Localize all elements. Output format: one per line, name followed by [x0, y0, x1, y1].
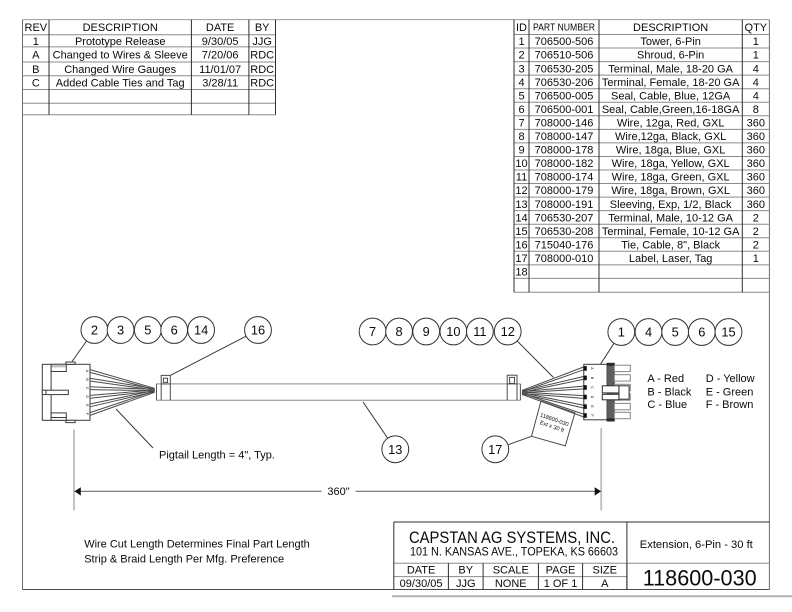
svg-text:10: 10 [446, 324, 460, 339]
svg-text:15: 15 [721, 325, 735, 340]
svg-text:706530-207: 706530-207 [535, 212, 594, 224]
svg-text:SIZE: SIZE [593, 565, 617, 577]
svg-text:708000-010: 708000-010 [535, 253, 594, 265]
svg-text:706530-206: 706530-206 [535, 77, 594, 89]
svg-text:360: 360 [747, 172, 765, 184]
svg-text:9: 9 [518, 145, 524, 157]
svg-text:Sleeving, Exp, 1/2, Black: Sleeving, Exp, 1/2, Black [610, 199, 732, 211]
svg-text:3: 3 [518, 63, 524, 75]
svg-text:Terminal, Female, 18-20 GA: Terminal, Female, 18-20 GA [602, 77, 740, 89]
svg-text:Extension, 6-Pin - 30 ft: Extension, 6-Pin - 30 ft [640, 539, 754, 551]
svg-text:14: 14 [194, 323, 208, 338]
svg-text:11: 11 [516, 172, 527, 184]
svg-text:360: 360 [747, 185, 765, 197]
svg-text:8: 8 [518, 131, 524, 143]
svg-text:C - Blue: C - Blue [647, 399, 687, 411]
svg-text:7: 7 [369, 324, 376, 339]
svg-text:B - Black: B - Black [647, 387, 692, 399]
svg-text:708000-146: 708000-146 [535, 117, 594, 129]
svg-text:RDC: RDC [250, 64, 274, 76]
svg-text:118600-030: 118600-030 [643, 565, 757, 590]
svg-text:17: 17 [488, 442, 502, 457]
svg-text:706530-208: 706530-208 [535, 226, 594, 238]
svg-text:JJG: JJG [456, 578, 476, 590]
svg-text:708000-191: 708000-191 [535, 199, 594, 211]
svg-text:Wire, 12ga, Red, GXL: Wire, 12ga, Red, GXL [617, 117, 725, 129]
svg-text:12: 12 [515, 185, 527, 197]
svg-text:360: 360 [747, 145, 765, 157]
svg-text:1: 1 [753, 50, 759, 62]
svg-text:CAPSTAN AG SYSTEMS, INC.: CAPSTAN AG SYSTEMS, INC. [409, 528, 615, 547]
svg-text:8: 8 [396, 324, 403, 339]
svg-text:PART NUMBER: PART NUMBER [533, 22, 595, 34]
svg-text:2: 2 [753, 212, 759, 224]
svg-text:A - Red: A - Red [647, 373, 684, 385]
svg-text:QTY: QTY [745, 22, 768, 34]
svg-text:4: 4 [518, 77, 524, 89]
svg-text:F - Brown: F - Brown [706, 399, 754, 411]
svg-text:708000-179: 708000-179 [535, 185, 594, 197]
svg-text:Shroud, 6-Pin: Shroud, 6-Pin [637, 50, 704, 62]
svg-text:9/30/05: 9/30/05 [202, 36, 239, 48]
svg-text:09/30/05: 09/30/05 [400, 578, 443, 590]
svg-text:Terminal, Male, 18-20 GA: Terminal, Male, 18-20 GA [608, 63, 733, 75]
svg-text:D: D [590, 396, 594, 399]
svg-text:Terminal, Female, 10-12 GA: Terminal, Female, 10-12 GA [602, 226, 740, 238]
svg-text:708000-147: 708000-147 [535, 131, 594, 143]
svg-text:BY: BY [458, 565, 473, 577]
svg-text:Tie, Cable, 8", Black: Tie, Cable, 8", Black [621, 239, 720, 251]
svg-text:2: 2 [753, 239, 759, 251]
svg-text:6: 6 [518, 104, 524, 116]
svg-text:708000-178: 708000-178 [535, 145, 594, 157]
svg-text:RDC: RDC [250, 78, 274, 90]
svg-text:Wire, 18ga, Brown, GXL: Wire, 18ga, Brown, GXL [611, 185, 730, 197]
svg-text:708000-182: 708000-182 [535, 158, 594, 170]
svg-text:Changed to Wires & Sleeve: Changed to Wires & Sleeve [53, 49, 188, 61]
svg-text:6: 6 [171, 323, 178, 338]
svg-text:360: 360 [747, 199, 765, 211]
svg-text:11/01/07: 11/01/07 [199, 64, 241, 76]
svg-text:Pigtail Length = 4", Typ.: Pigtail Length = 4", Typ. [159, 449, 275, 461]
svg-text:Prototype Release: Prototype Release [75, 36, 166, 48]
svg-text:SCALE: SCALE [493, 565, 529, 577]
svg-text:1: 1 [753, 36, 759, 48]
svg-text:4: 4 [753, 90, 759, 102]
svg-text:2: 2 [753, 226, 759, 238]
svg-text:1 OF 1: 1 OF 1 [544, 578, 578, 590]
svg-text:13: 13 [515, 199, 527, 211]
svg-text:A: A [601, 578, 609, 590]
svg-text:DESCRIPTION: DESCRIPTION [633, 22, 708, 34]
svg-text:5: 5 [144, 323, 151, 338]
svg-text:D: D [85, 395, 89, 398]
svg-text:Added Cable Ties and Tag: Added Cable Ties and Tag [56, 78, 185, 90]
svg-text:C: C [32, 78, 40, 90]
svg-text:360": 360" [327, 486, 349, 498]
svg-text:C: C [85, 387, 89, 390]
svg-text:1: 1 [33, 36, 39, 48]
svg-text:706510-506: 706510-506 [535, 50, 594, 62]
svg-text:DATE: DATE [407, 565, 436, 577]
svg-text:B: B [32, 64, 39, 76]
svg-text:17: 17 [515, 253, 527, 265]
svg-text:16: 16 [251, 323, 265, 338]
svg-text:Changed Wire Gauges: Changed Wire Gauges [64, 64, 176, 76]
svg-text:11: 11 [473, 324, 486, 339]
svg-text:360: 360 [747, 131, 765, 143]
svg-text:706500-506: 706500-506 [535, 36, 594, 48]
svg-text:Terminal, Male, 10-12 GA: Terminal, Male, 10-12 GA [608, 212, 733, 224]
svg-text:Wire, 18ga, Yellow, GXL: Wire, 18ga, Yellow, GXL [612, 158, 730, 170]
svg-text:Wire,12ga, Black, GXL: Wire,12ga, Black, GXL [615, 131, 726, 143]
svg-text:12: 12 [501, 324, 515, 339]
svg-text:3: 3 [117, 323, 124, 338]
svg-text:708000-174: 708000-174 [535, 172, 594, 184]
svg-text:REV: REV [25, 22, 48, 34]
svg-text:706530-205: 706530-205 [535, 63, 594, 75]
svg-text:1: 1 [618, 325, 625, 340]
svg-text:4: 4 [645, 325, 652, 340]
svg-text:Wire, 18ga, Blue, GXL: Wire, 18ga, Blue, GXL [616, 145, 725, 157]
svg-text:A: A [32, 49, 40, 61]
svg-text:706500-005: 706500-005 [535, 90, 594, 102]
svg-text:ID: ID [516, 22, 527, 34]
svg-text:13: 13 [388, 442, 402, 457]
svg-text:RDC: RDC [250, 49, 274, 61]
svg-text:8: 8 [753, 104, 759, 116]
svg-text:PAGE: PAGE [546, 565, 576, 577]
svg-text:15: 15 [515, 226, 527, 238]
svg-text:Seal, Cable,Green,16-18GA: Seal, Cable,Green,16-18GA [602, 104, 740, 116]
svg-text:DESCRIPTION: DESCRIPTION [83, 22, 158, 34]
svg-text:Wire, 18ga, Green, GXL: Wire, 18ga, Green, GXL [612, 172, 730, 184]
svg-text:4: 4 [753, 63, 759, 75]
svg-text:18: 18 [515, 267, 527, 279]
svg-text:JJG: JJG [252, 36, 272, 48]
svg-text:360: 360 [747, 117, 765, 129]
svg-text:5: 5 [672, 325, 679, 340]
svg-text:Tower, 6-Pin: Tower, 6-Pin [640, 36, 701, 48]
svg-text:BY: BY [255, 22, 270, 34]
svg-text:Strip & Braid Length Per Mfg.: Strip & Braid Length Per Mfg. Preference [84, 553, 284, 565]
svg-text:715040-176: 715040-176 [535, 239, 594, 251]
svg-text:9: 9 [423, 324, 430, 339]
svg-text:360: 360 [747, 158, 765, 170]
svg-text:14: 14 [515, 212, 527, 224]
svg-text:2: 2 [91, 323, 98, 338]
svg-text:D - Yellow: D - Yellow [706, 373, 755, 385]
svg-text:101 N. KANSAS AVE., TOPEKA, KS: 101 N. KANSAS AVE., TOPEKA, KS 66603 [410, 547, 618, 559]
svg-text:1: 1 [518, 36, 524, 48]
svg-text:4: 4 [753, 77, 759, 89]
svg-text:Label, Laser, Tag: Label, Laser, Tag [629, 253, 713, 265]
svg-text:3/28/11: 3/28/11 [202, 78, 238, 90]
svg-text:DATE: DATE [206, 22, 235, 34]
svg-text:1: 1 [753, 253, 759, 265]
svg-text:C: C [590, 386, 594, 389]
svg-text:16: 16 [515, 239, 527, 251]
svg-text:E - Green: E - Green [706, 387, 754, 399]
svg-text:706500-001: 706500-001 [535, 104, 594, 116]
svg-text:2: 2 [518, 50, 524, 62]
svg-text:NONE: NONE [495, 578, 527, 590]
svg-text:Seal, Cable, Blue, 12GA: Seal, Cable, Blue, 12GA [611, 90, 731, 102]
svg-text:Wire Cut Length Determines Fin: Wire Cut Length Determines Final Part Le… [84, 539, 310, 551]
svg-text:5: 5 [518, 90, 524, 102]
svg-text:10: 10 [515, 158, 527, 170]
svg-text:7/20/06: 7/20/06 [202, 49, 239, 61]
svg-text:7: 7 [518, 117, 524, 129]
svg-text:6: 6 [698, 325, 705, 340]
